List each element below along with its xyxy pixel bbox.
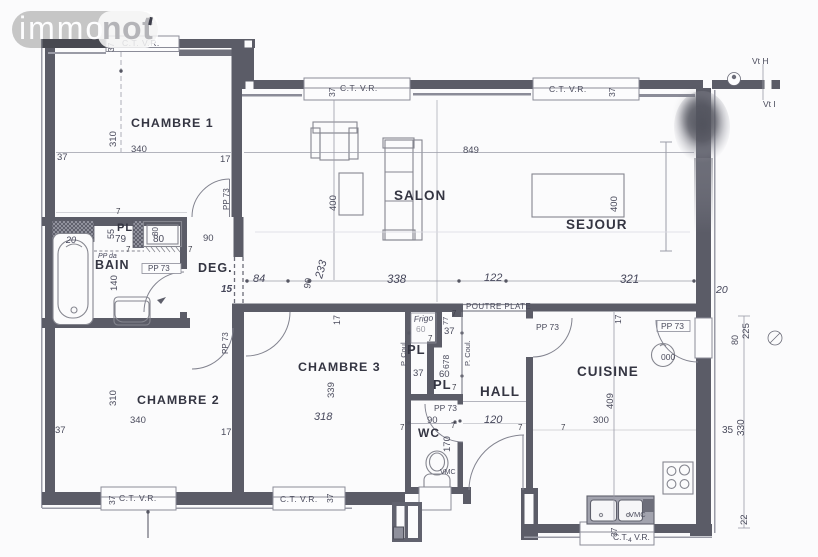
svg-text:7: 7 — [452, 383, 457, 392]
svg-text:37: 37 — [607, 87, 617, 97]
svg-text:80: 80 — [730, 335, 740, 345]
svg-text:122: 122 — [484, 272, 502, 284]
svg-text:20: 20 — [65, 235, 76, 245]
svg-text:330: 330 — [736, 419, 747, 436]
svg-text:POUTRE PLATE: POUTRE PLATE — [466, 302, 531, 311]
svg-text:7: 7 — [561, 423, 566, 432]
svg-text:SEJOUR: SEJOUR — [566, 217, 628, 232]
svg-text:678: 678 — [441, 355, 451, 369]
svg-text:7: 7 — [126, 245, 131, 254]
svg-text:35: 35 — [722, 425, 734, 436]
svg-text:77: 77 — [441, 317, 450, 325]
svg-text:400: 400 — [328, 195, 339, 211]
svg-text:PL: PL — [117, 222, 133, 234]
svg-text:not: not — [102, 10, 153, 46]
svg-text:HALL: HALL — [480, 384, 520, 399]
svg-text:37: 37 — [327, 87, 337, 97]
svg-text:37: 37 — [444, 326, 455, 337]
svg-text:37: 37 — [413, 368, 424, 379]
svg-text:60: 60 — [416, 324, 426, 334]
svg-text:140: 140 — [109, 275, 120, 291]
svg-text:233: 233 — [313, 258, 330, 281]
svg-text:BAIN: BAIN — [95, 258, 130, 272]
svg-text:000: 000 — [661, 352, 675, 362]
svg-text:79: 79 — [115, 234, 127, 245]
svg-text:Vt I: Vt I — [763, 99, 776, 109]
svg-text:SALON: SALON — [394, 188, 446, 203]
svg-text:37: 37 — [107, 495, 117, 505]
svg-text:15: 15 — [221, 284, 233, 295]
svg-text:WC: WC — [418, 426, 440, 440]
svg-text:90: 90 — [302, 277, 315, 289]
svg-text:225: 225 — [741, 323, 752, 339]
svg-text:17: 17 — [613, 314, 623, 324]
svg-text:17: 17 — [332, 315, 342, 325]
svg-text:400: 400 — [609, 196, 620, 212]
svg-text:DEG.: DEG. — [198, 261, 233, 275]
svg-text:90: 90 — [427, 415, 438, 426]
svg-text:318: 318 — [314, 411, 333, 423]
svg-text:C.T. V.R.: C.T. V.R. — [340, 83, 378, 93]
svg-text:PP da: PP da — [98, 253, 117, 260]
svg-text:VMC: VMC — [440, 469, 456, 476]
svg-text:321: 321 — [620, 274, 639, 286]
svg-text:CHAMBRE 3: CHAMBRE 3 — [298, 360, 381, 374]
svg-text:22: 22 — [739, 514, 750, 525]
svg-text:84: 84 — [253, 273, 265, 285]
svg-text:PP 73: PP 73 — [221, 332, 230, 354]
svg-text:7: 7 — [451, 421, 456, 430]
svg-text:90: 90 — [203, 233, 214, 244]
svg-text:7: 7 — [428, 334, 433, 343]
svg-text:C.T. V.R.: C.T. V.R. — [119, 493, 157, 503]
svg-text:PL: PL — [407, 342, 426, 357]
svg-text:CHAMBRE 1: CHAMBRE 1 — [131, 116, 214, 130]
svg-text:310: 310 — [108, 390, 119, 406]
svg-text:7: 7 — [188, 245, 193, 254]
svg-text:120: 120 — [484, 414, 503, 426]
svg-text:338: 338 — [387, 274, 407, 286]
svg-text:Frigo: Frigo — [413, 313, 433, 324]
svg-text:7: 7 — [116, 207, 121, 216]
svg-text:C.T. V.R.: C.T. V.R. — [280, 494, 318, 504]
svg-text:340: 340 — [131, 144, 147, 155]
svg-text:PP 73: PP 73 — [222, 188, 231, 210]
svg-text:170: 170 — [442, 436, 453, 452]
svg-text:80: 80 — [151, 227, 160, 236]
svg-text:37: 37 — [55, 425, 66, 436]
svg-text:CUISINE: CUISINE — [577, 364, 639, 379]
svg-text:CHAMBRE 2: CHAMBRE 2 — [137, 393, 220, 407]
svg-text:PP 73: PP 73 — [661, 321, 684, 331]
svg-text:PP 73: PP 73 — [148, 264, 170, 273]
svg-text:300: 300 — [593, 415, 609, 426]
svg-text:409: 409 — [605, 393, 616, 409]
svg-text:20: 20 — [715, 284, 728, 296]
svg-text:37: 37 — [325, 493, 335, 503]
svg-text:37: 37 — [57, 152, 68, 163]
svg-text:340: 340 — [130, 415, 146, 426]
svg-text:Vt H: Vt H — [752, 56, 769, 66]
svg-text:310: 310 — [108, 131, 119, 147]
svg-text:P. Coul.: P. Coul. — [463, 340, 472, 366]
svg-text:37: 37 — [609, 527, 619, 537]
svg-text:17: 17 — [221, 427, 232, 438]
svg-text:339: 339 — [326, 382, 337, 398]
svg-text:17: 17 — [220, 154, 231, 165]
svg-text:60: 60 — [439, 369, 450, 380]
svg-text:P. Coul.: P. Coul. — [399, 340, 408, 366]
svg-text:C.T. V.R.: C.T. V.R. — [549, 84, 587, 94]
svg-text:7: 7 — [400, 423, 405, 432]
svg-text:7: 7 — [518, 423, 523, 432]
svg-text:7: 7 — [452, 309, 457, 318]
svg-text:VMC: VMC — [629, 510, 646, 519]
svg-text:849: 849 — [463, 145, 479, 156]
svg-text:immo: immo — [19, 10, 105, 46]
svg-text:PP 73: PP 73 — [536, 322, 559, 332]
svg-text:PP 73: PP 73 — [434, 403, 457, 413]
